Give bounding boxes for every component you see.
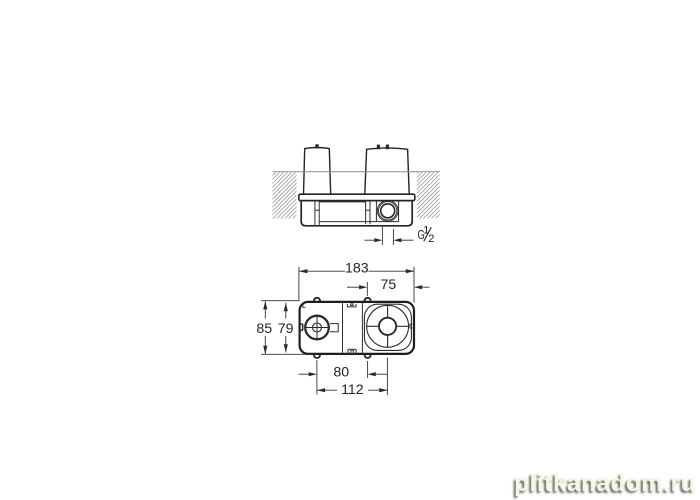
svg-text:75: 75 [381,277,397,293]
svg-text:183: 183 [345,261,369,277]
svg-text:plitkanadom.ru: plitkanadom.ru [514,470,696,497]
svg-text:85: 85 [256,321,272,337]
svg-text:112: 112 [341,382,364,398]
svg-text:2: 2 [428,233,434,245]
svg-text:80: 80 [333,364,349,380]
svg-text:79: 79 [278,321,294,337]
